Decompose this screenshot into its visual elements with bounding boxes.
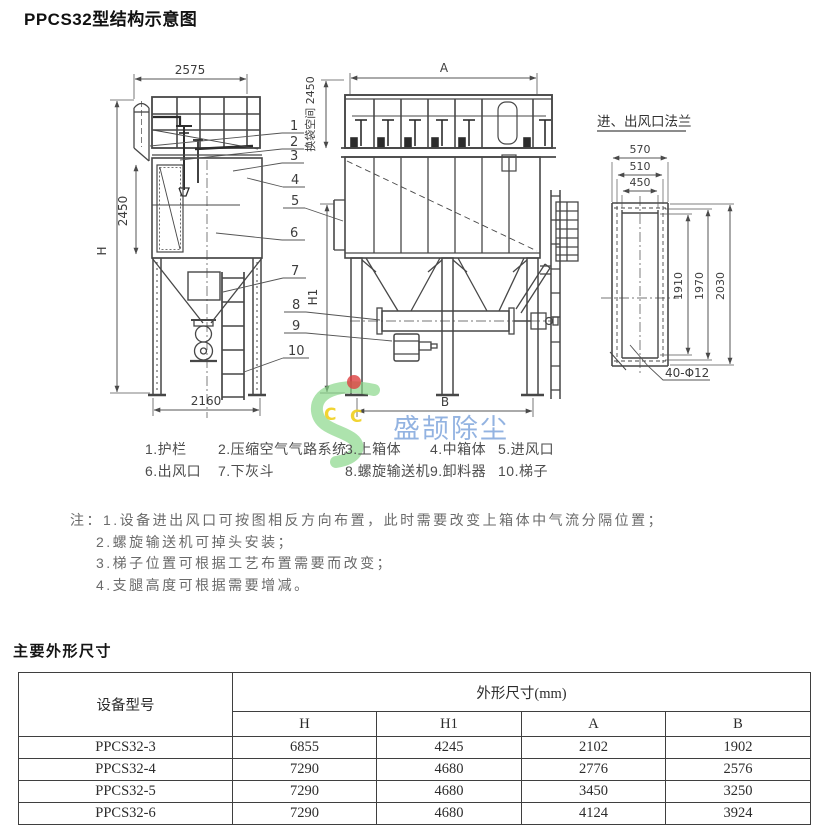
cell-model: PPCS32-4 (19, 759, 233, 781)
cell-h1: 4245 (377, 737, 522, 759)
cell-model: PPCS32-6 (19, 803, 233, 825)
header-dims-group: 外形尺寸(mm) (233, 673, 811, 712)
note-line-3: 3.梯子位置可根据工艺布置需要而改变； (70, 553, 664, 574)
note-line-1: 注：1.设备进出风口可按图相反方向布置，此时需要改变上箱体中气流分隔位置； (70, 510, 664, 531)
cell-h: 7290 (233, 759, 377, 781)
cell-a: 2776 (522, 759, 666, 781)
side-view (134, 97, 266, 418)
dim-flange-holes: 40-Φ12 (665, 366, 709, 380)
dim-flange-510: 510 (630, 160, 651, 173)
callout-3: 3 (290, 149, 298, 164)
dim-flange-2030: 2030 (714, 272, 727, 300)
note-line-2: 2.螺旋输送机可掉头安装； (70, 532, 664, 553)
legend-item-3: 3.上箱体 (345, 439, 401, 459)
notes-prefix: 注： (70, 512, 103, 528)
note-text-4: 4.支腿高度可根据需要增减。 (96, 577, 311, 593)
header-b: B (666, 712, 811, 737)
cell-b: 1902 (666, 737, 811, 759)
header-h: H (233, 712, 377, 737)
dimensions-table: 设备型号 外形尺寸(mm) H H1 A B PPCS32-3 6855 424… (18, 672, 811, 825)
legend-item-4: 4.中箱体 (430, 439, 486, 459)
callout-1: 1 (290, 119, 298, 134)
front-view (334, 95, 578, 399)
callout-6: 6 (290, 226, 298, 241)
dim-flange-1910: 1910 (672, 272, 685, 300)
note-text-1: 1.设备进出风口可按图相反方向布置，此时需要改变上箱体中气流分隔位置； (103, 512, 664, 528)
dim-bag-space: 换袋空间 2450 (303, 76, 317, 152)
cell-h: 6855 (233, 737, 377, 759)
callout-2: 2 (290, 135, 298, 150)
dim-top-width: 2575 (175, 63, 206, 77)
header-h1: H1 (377, 712, 522, 737)
cell-a: 3450 (522, 781, 666, 803)
legend-item-6: 6.出风口 (145, 461, 201, 481)
notes-block: 注：1.设备进出风口可按图相反方向布置，此时需要改变上箱体中气流分隔位置； 2.… (70, 510, 664, 596)
legend-item-10: 10.梯子 (498, 461, 548, 481)
section-title: 主要外形尺寸 (13, 640, 112, 661)
callout-9: 9 (292, 319, 300, 334)
cell-model: PPCS32-3 (19, 737, 233, 759)
note-text-2: 2.螺旋输送机可掉头安装； (96, 534, 294, 550)
callout-numbers: 1 2 3 4 5 6 7 8 9 10 (288, 119, 305, 359)
table-row: PPCS32-5 7290 4680 3450 3250 (19, 781, 811, 803)
table-row: PPCS32-3 6855 4245 2102 1902 (19, 737, 811, 759)
header-model: 设备型号 (19, 673, 233, 737)
cell-h: 7290 (233, 803, 377, 825)
cell-a: 2102 (522, 737, 666, 759)
note-text-3: 3.梯子位置可根据工艺布置需要而改变； (96, 555, 393, 571)
watermark-letter-c2: C (350, 407, 362, 427)
cell-h1: 4680 (377, 759, 522, 781)
table-row: PPCS32-4 7290 4680 2776 2576 (19, 759, 811, 781)
watermark-logo-dot (347, 375, 361, 389)
dim-h: H (95, 246, 109, 255)
flange-view-title: 进、出风口法兰 (597, 114, 692, 130)
callout-7: 7 (291, 264, 299, 279)
dim-b: B (441, 395, 449, 409)
callout-5: 5 (291, 194, 299, 209)
cell-h1: 4680 (377, 803, 522, 825)
legend-item-9: 9.卸料器 (430, 461, 486, 481)
callout-8: 8 (292, 298, 300, 313)
legend-item-8: 8.螺旋输送机 (345, 461, 430, 481)
structure-diagram: 2575 2450 H 2160 A 换袋空间 2450 H1 B 570 51… (0, 0, 828, 500)
dim-flange-1970: 1970 (693, 272, 706, 300)
cell-a: 4124 (522, 803, 666, 825)
callout-4: 4 (291, 173, 299, 188)
cell-b: 2576 (666, 759, 811, 781)
cell-b: 3924 (666, 803, 811, 825)
cell-h: 7290 (233, 781, 377, 803)
cell-b: 3250 (666, 781, 811, 803)
cell-h1: 4680 (377, 781, 522, 803)
legend-item-1: 1.护栏 (145, 439, 187, 459)
dim-side-height: 2450 (116, 196, 130, 227)
dim-base-width: 2160 (191, 394, 222, 408)
dim-flange-570: 570 (630, 143, 651, 156)
dim-h1: H1 (306, 289, 320, 306)
callout-10: 10 (288, 344, 305, 359)
table-row: PPCS32-6 7290 4680 4124 3924 (19, 803, 811, 825)
dim-a: A (440, 61, 449, 75)
legend-item-5: 5.进风口 (498, 439, 554, 459)
header-a: A (522, 712, 666, 737)
legend-item-2: 2.压缩空气气路系统 (218, 439, 347, 459)
dim-flange-450: 450 (630, 176, 651, 189)
legend-item-7: 7.下灰斗 (218, 461, 274, 481)
cell-model: PPCS32-5 (19, 781, 233, 803)
note-line-4: 4.支腿高度可根据需要增减。 (70, 575, 664, 596)
watermark-letter-c1: C (324, 405, 336, 425)
